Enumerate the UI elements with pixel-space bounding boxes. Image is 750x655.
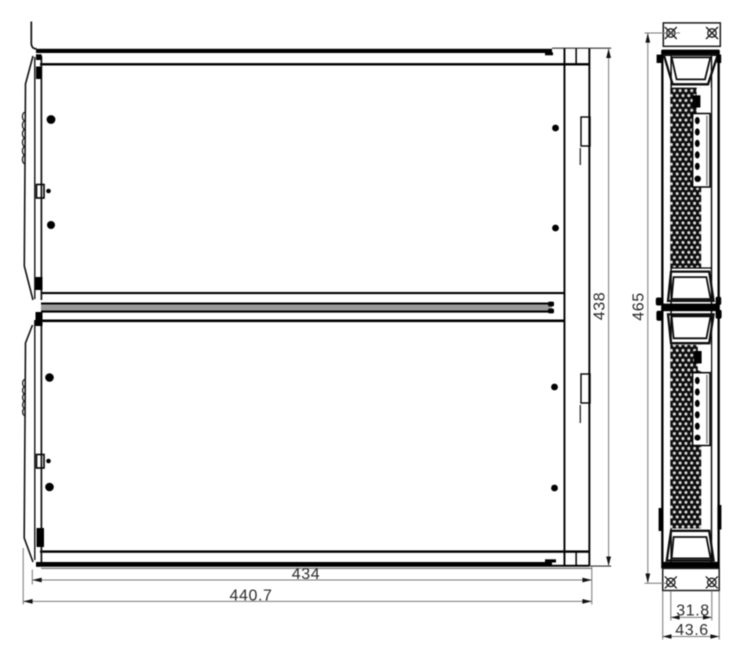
svg-text:438: 438 bbox=[592, 292, 609, 321]
svg-text:43.6: 43.6 bbox=[675, 622, 709, 639]
svg-text:440.7: 440.7 bbox=[229, 587, 272, 604]
svg-text:434: 434 bbox=[292, 566, 321, 583]
svg-text:31.8: 31.8 bbox=[676, 603, 710, 620]
svg-text:465: 465 bbox=[631, 292, 648, 321]
